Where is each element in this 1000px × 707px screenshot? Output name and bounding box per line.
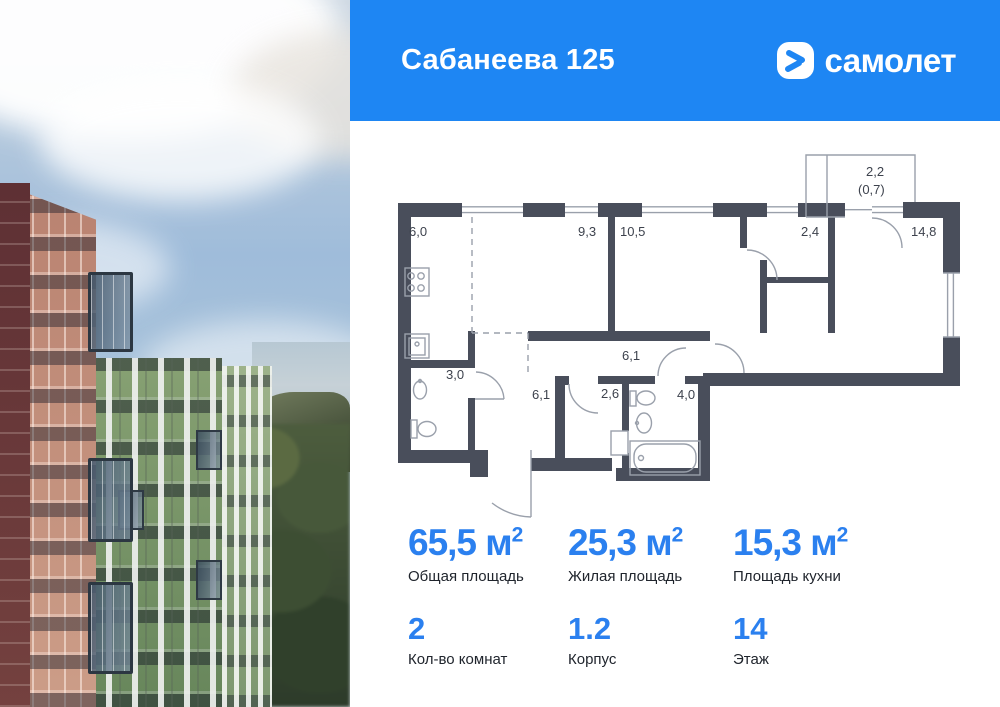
- cloud: [40, 80, 320, 200]
- stat-unit-sup: 2: [672, 524, 683, 547]
- room-label: 3,0: [446, 367, 464, 382]
- room-label: 14,8: [911, 224, 936, 239]
- glass-balcony: [88, 458, 133, 542]
- room-labels: 6,09,310,52,414,82,2(0,7)3,06,16,12,64,0: [409, 164, 936, 402]
- page-title: Сабанеева 125: [401, 44, 615, 77]
- stat-label: Жилая площадь: [568, 568, 733, 585]
- walls: [398, 202, 960, 481]
- room-label: 10,5: [620, 224, 645, 239]
- room-label: 2,2: [866, 164, 884, 179]
- room-label: 6,1: [622, 348, 640, 363]
- info-panel: Сабанеева 125 самолет: [350, 0, 1000, 707]
- room-label: 2,4: [801, 224, 819, 239]
- stat-rooms: 2 Кол-во комнат: [408, 613, 568, 668]
- stat-building: 1.2 Корпус: [568, 613, 733, 668]
- stat-value: 25,3: [568, 522, 636, 563]
- stat-value: 1.2: [568, 613, 733, 644]
- stat-value: 15,3: [733, 522, 801, 563]
- stat-label: Корпус: [568, 651, 733, 668]
- stat-label: Общая площадь: [408, 568, 568, 585]
- stat-kitchen-area: 15,3 м2 Площадь кухни: [733, 524, 968, 585]
- stats-row-areas: 65,5 м2 Общая площадь 25,3 м2 Жилая площ…: [408, 524, 968, 585]
- room-label: 9,3: [578, 224, 596, 239]
- header-bar: Сабанеева 125 самолет: [350, 0, 1000, 121]
- stat-unit-sup: 2: [837, 524, 848, 547]
- stat-unit-sup: 2: [512, 524, 523, 547]
- dashed-zone-lines: [472, 217, 528, 376]
- samolet-chevron-icon: [777, 42, 814, 79]
- stat-living-area: 25,3 м2 Жилая площадь: [568, 524, 733, 585]
- balcony-box: [196, 560, 222, 600]
- room-label: 6,0: [409, 224, 427, 239]
- stat-unit: м: [485, 522, 511, 563]
- stat-unit: м: [810, 522, 836, 563]
- green-building-side: [222, 366, 272, 707]
- listing-card: Сабанеева 125 самолет: [0, 0, 1000, 707]
- stat-value: 14: [733, 613, 968, 644]
- stat-floor: 14 Этаж: [733, 613, 968, 668]
- room-label: 6,1: [532, 387, 550, 402]
- stat-label: Кол-во комнат: [408, 651, 568, 668]
- glass-balcony: [88, 272, 133, 352]
- room-label: (0,7): [858, 182, 885, 197]
- stat-value: 2: [408, 613, 568, 644]
- balcony-box: [196, 430, 222, 470]
- brand-wordmark: самолет: [824, 42, 956, 80]
- room-label: 4,0: [677, 387, 695, 402]
- glass-balcony: [88, 582, 133, 674]
- stats-grid: 65,5 м2 Общая площадь 25,3 м2 Жилая площ…: [408, 524, 968, 668]
- stat-total-area: 65,5 м2 Общая площадь: [408, 524, 568, 585]
- stat-value: 65,5: [408, 522, 476, 563]
- room-label: 2,6: [601, 386, 619, 401]
- building-photo: [0, 0, 350, 707]
- stat-label: Площадь кухни: [733, 568, 968, 585]
- brand-logo: самолет: [777, 42, 956, 80]
- stat-label: Этаж: [733, 651, 968, 668]
- maroon-building-edge: [0, 183, 30, 707]
- floor-plan: 6,09,310,52,414,82,2(0,7)3,06,16,12,64,0: [385, 140, 970, 535]
- stats-row-details: 2 Кол-во комнат 1.2 Корпус 14 Этаж: [408, 613, 968, 668]
- stat-unit: м: [645, 522, 671, 563]
